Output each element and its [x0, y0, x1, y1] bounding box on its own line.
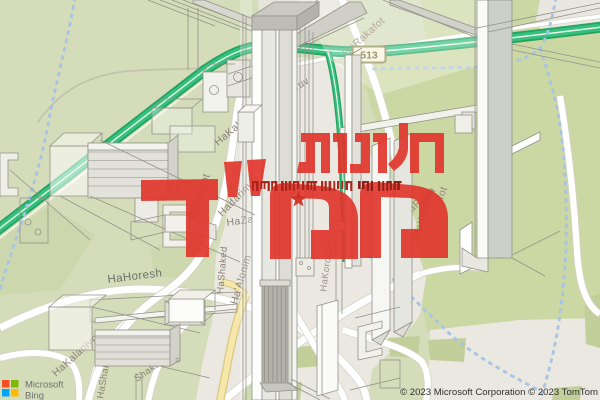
svg-text:© 2023 Microsoft Corporation ©: © 2023 Microsoft Corporation © 2023 TomT…: [400, 387, 598, 398]
svg-text:Microsoft: Microsoft: [25, 380, 64, 391]
svg-text:Bing: Bing: [25, 391, 44, 400]
